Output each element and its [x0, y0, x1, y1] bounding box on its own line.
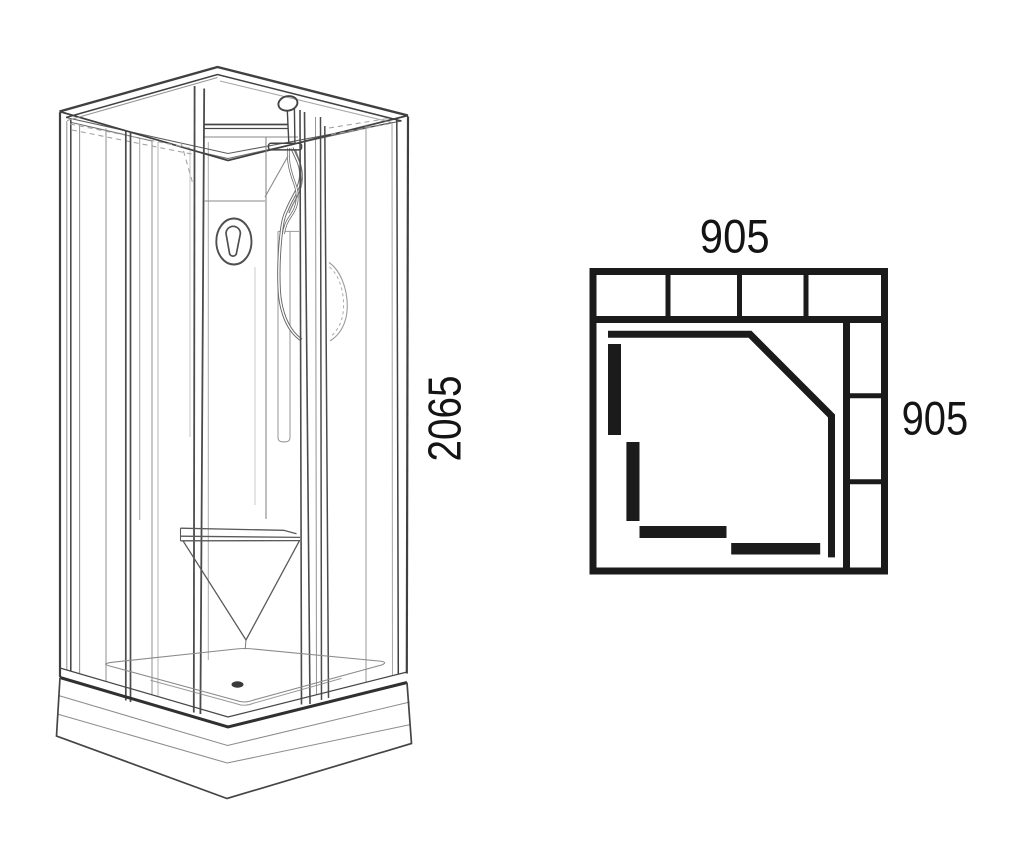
svg-text:905: 905	[700, 211, 770, 263]
svg-text:2065: 2065	[420, 376, 471, 462]
svg-text:905: 905	[902, 394, 969, 446]
